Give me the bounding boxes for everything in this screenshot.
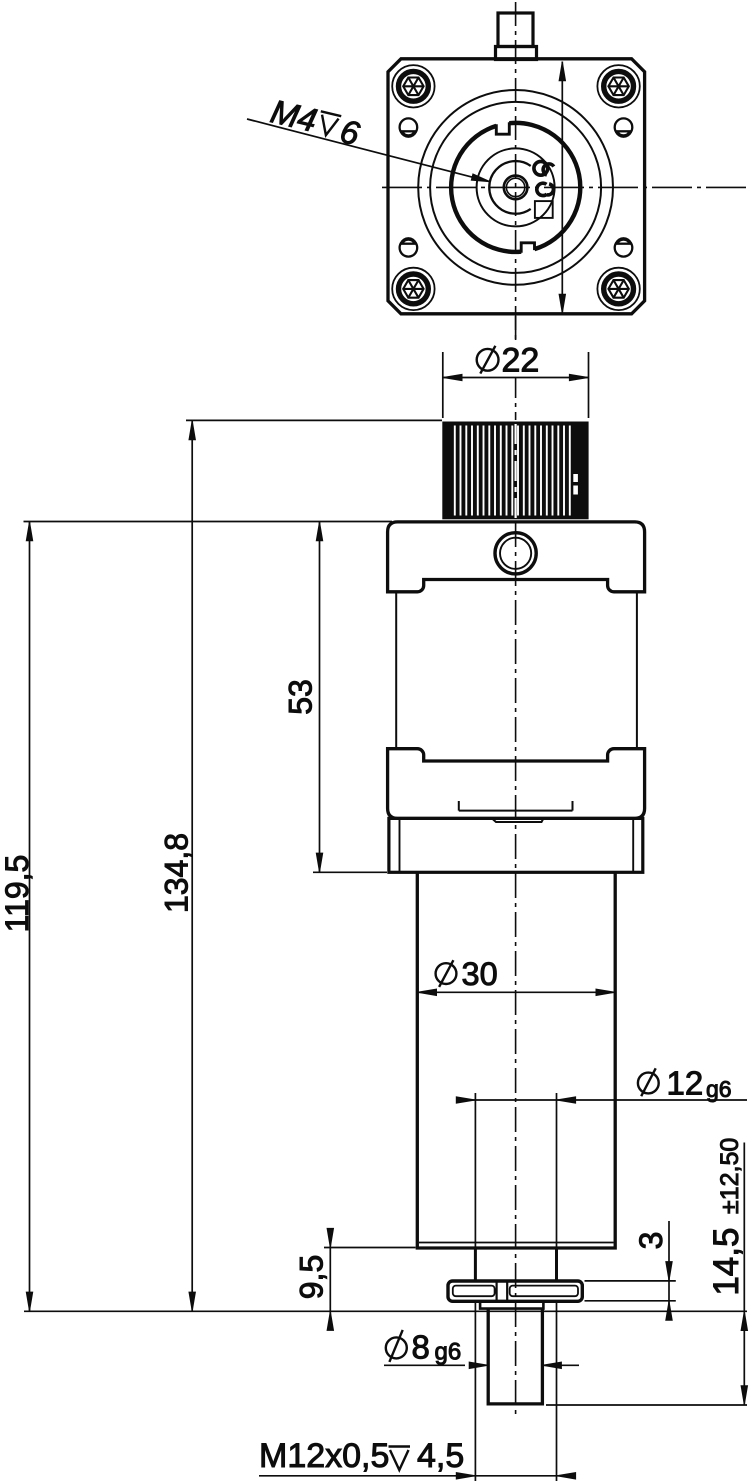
svg-text:3: 3 bbox=[633, 1232, 669, 1250]
svg-text:4,5: 4,5 bbox=[417, 1437, 464, 1475]
svg-text:53: 53 bbox=[283, 679, 319, 715]
svg-text:8: 8 bbox=[412, 1329, 430, 1366]
svg-text:119,5: 119,5 bbox=[0, 855, 35, 933]
svg-text:g6: g6 bbox=[435, 1339, 462, 1366]
svg-text:134,8: 134,8 bbox=[159, 833, 195, 913]
svg-text:M4: M4 bbox=[267, 92, 320, 139]
svg-text:22: 22 bbox=[502, 342, 540, 380]
svg-text:9,5: 9,5 bbox=[294, 1255, 330, 1299]
svg-text:6: 6 bbox=[337, 112, 364, 152]
svg-text:30: 30 bbox=[462, 956, 498, 992]
svg-text:14,5: 14,5 bbox=[707, 1228, 746, 1296]
svg-text:M12x0,5: M12x0,5 bbox=[259, 1437, 389, 1475]
svg-text:g6: g6 bbox=[706, 1076, 732, 1102]
svg-text:±12,50: ±12,50 bbox=[716, 1138, 744, 1214]
svg-text:12: 12 bbox=[667, 1065, 704, 1102]
